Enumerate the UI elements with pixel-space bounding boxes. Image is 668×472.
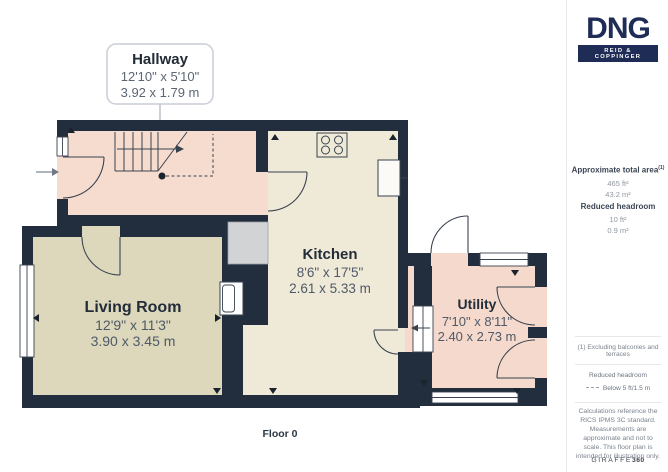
total-area-imperial: 465 ft²	[567, 178, 668, 189]
legend-row: Below 5 ft/1.5 m	[567, 385, 668, 392]
living-room-label: Living Room 12'9" x 11'3" 3.90 x 3.45 m	[85, 299, 182, 349]
brand-logo: DNG REID & COPPINGER	[567, 14, 668, 63]
callout-metric: 3.92 x 1.79 m	[121, 85, 200, 100]
svg-text:8'6" x 17'5": 8'6" x 17'5"	[297, 265, 364, 280]
fireplace	[220, 282, 243, 315]
storage-recess	[228, 222, 268, 264]
divider	[575, 364, 661, 365]
giraffe360-logo: GIRAFFE360	[567, 449, 668, 467]
area-footnote: (1) Excluding balconies and terraces	[571, 344, 665, 358]
callout-room-name: Hallway	[132, 51, 189, 68]
brand-tagline: REID & COPPINGER	[578, 45, 658, 62]
total-area-block: Approximate total area(1) 465 ft² 43.2 m…	[567, 165, 668, 200]
reduced-headroom-imperial: 10 ft²	[567, 214, 668, 225]
svg-text:Kitchen: Kitchen	[302, 246, 357, 263]
legend-label: Below 5 ft/1.5 m	[603, 385, 650, 392]
reduced-headroom-metric: 0.9 m²	[567, 225, 668, 236]
legend-title: Reduced headroom	[567, 372, 668, 379]
svg-text:2.40 x 2.73 m: 2.40 x 2.73 m	[438, 329, 517, 344]
floorplan-page: Hallway 12'10" x 5'10" 3.92 x 1.79 m Liv…	[0, 0, 668, 472]
svg-text:2.61 x 5.33 m: 2.61 x 5.33 m	[289, 281, 371, 296]
stairs-direction-dot	[159, 173, 166, 180]
total-area-title: Approximate total area(1)	[567, 165, 668, 175]
reduced-headroom-title: Reduced headroom	[567, 202, 668, 211]
brand-name: DNG	[567, 14, 668, 44]
hallway-callout: Hallway 12'10" x 5'10" 3.92 x 1.79 m	[107, 44, 213, 104]
utility-back-door	[431, 216, 468, 253]
reduced-headroom-block: Reduced headroom 10 ft² 0.9 m²	[567, 202, 668, 236]
divider	[575, 336, 661, 337]
svg-text:7'10" x 8'11": 7'10" x 8'11"	[442, 314, 513, 329]
entrance-arrow	[36, 168, 59, 176]
divider	[575, 402, 661, 403]
footnote-marker: (1)	[658, 165, 664, 171]
callout-imperial: 12'10" x 5'10"	[121, 69, 200, 84]
svg-text:Living Room: Living Room	[85, 299, 182, 316]
info-sidebar: DNG REID & COPPINGER Approximate total a…	[566, 0, 668, 472]
floor-label: Floor 0	[262, 428, 297, 440]
floor-plan: Hallway 12'10" x 5'10" 3.92 x 1.79 m Liv…	[0, 0, 566, 472]
svg-text:3.90 x 3.45 m: 3.90 x 3.45 m	[91, 333, 176, 349]
reduced-headroom-line-icon	[586, 387, 599, 388]
kitchen-unit	[378, 160, 400, 196]
svg-text:12'9" x 11'3": 12'9" x 11'3"	[95, 317, 171, 333]
total-area-metric: 43.2 m²	[567, 189, 668, 200]
svg-text:Utility: Utility	[458, 296, 497, 312]
